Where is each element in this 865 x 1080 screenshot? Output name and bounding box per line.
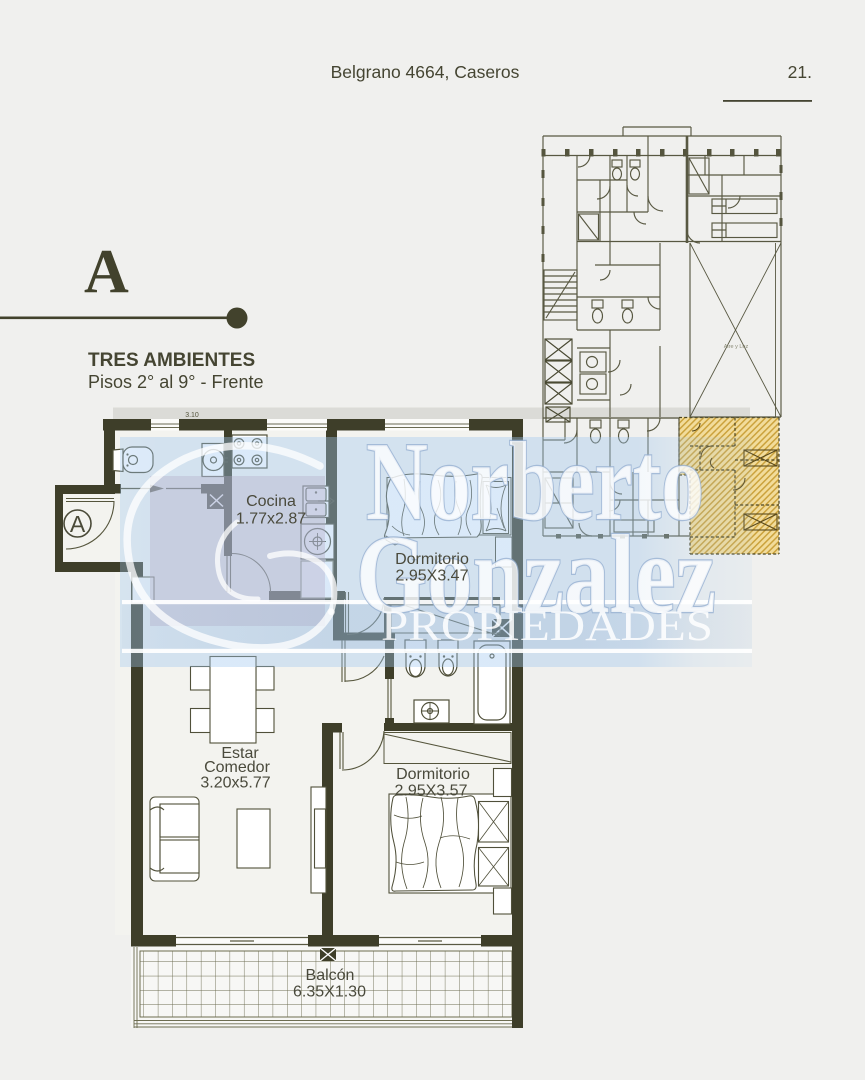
svg-text:Dormitorio: Dormitorio xyxy=(396,766,470,783)
svg-text:Cocina: Cocina xyxy=(246,493,296,510)
svg-text:A: A xyxy=(84,238,129,306)
svg-text:1.77x2.87: 1.77x2.87 xyxy=(236,511,306,528)
svg-text:TRES AMBIENTES: TRES AMBIENTES xyxy=(88,350,255,371)
svg-text:Dormitorio: Dormitorio xyxy=(395,551,469,568)
svg-text:Pisos 2° al 9° - Frente: Pisos 2° al 9° - Frente xyxy=(88,372,263,392)
svg-text:A: A xyxy=(70,511,86,537)
svg-text:21.: 21. xyxy=(788,62,812,82)
svg-text:2.95X3.47: 2.95X3.47 xyxy=(396,568,469,585)
svg-text:3.10: 3.10 xyxy=(185,412,199,419)
svg-text:Aire y Luz: Aire y Luz xyxy=(724,344,749,350)
svg-text:PROPIEDADES: PROPIEDADES xyxy=(381,603,713,650)
svg-text:Comedor: Comedor xyxy=(204,759,270,776)
svg-text:3.20x5.77: 3.20x5.77 xyxy=(200,775,270,792)
svg-text:6.35X1.30: 6.35X1.30 xyxy=(293,984,366,1001)
svg-text:Belgrano 4664, Caseros: Belgrano 4664, Caseros xyxy=(331,62,520,82)
svg-text:2.95X3.57: 2.95X3.57 xyxy=(395,783,468,800)
svg-text:Balcón: Balcón xyxy=(306,967,355,984)
